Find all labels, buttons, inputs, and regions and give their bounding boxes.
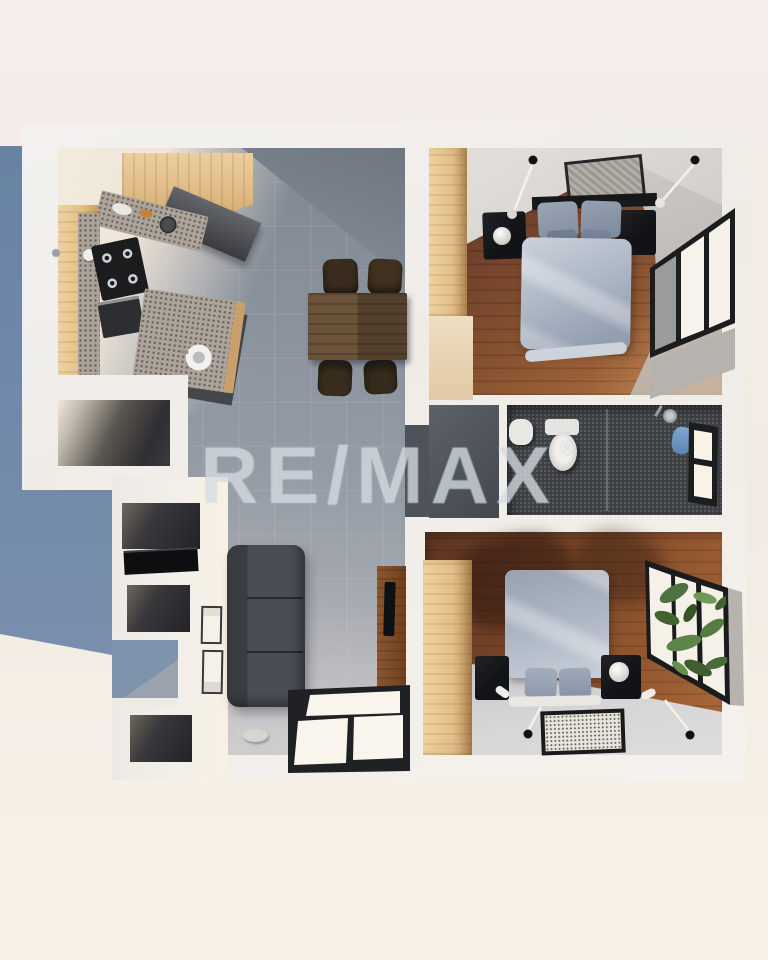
shower-head (663, 409, 677, 423)
bread (139, 208, 154, 219)
closet-column (112, 477, 228, 780)
sunlight-patch (579, 288, 722, 395)
faucet (180, 350, 188, 354)
plate (111, 201, 133, 217)
door-handle (52, 249, 60, 257)
registered-trademark-symbol: ® (560, 439, 575, 459)
dining-chair (317, 359, 352, 396)
sofa (227, 545, 305, 707)
pillow (558, 667, 591, 698)
closet-interior (122, 503, 200, 549)
bedroom-1 (429, 148, 722, 395)
sink (184, 343, 213, 372)
sphere-lamp (609, 662, 629, 682)
blue-towel (670, 426, 694, 456)
duvet (505, 570, 609, 678)
floor-plate (243, 729, 268, 742)
pillow (524, 667, 558, 699)
dining-table (308, 293, 407, 360)
floor-plan-render: RE/MAX® (0, 0, 768, 960)
pan (158, 214, 179, 235)
tv (383, 582, 395, 636)
utility-room-interior (58, 400, 170, 466)
sphere-lamp (493, 227, 511, 245)
dining-chair (363, 359, 398, 395)
framed-sketch (201, 606, 223, 644)
sofa-seam (247, 597, 303, 599)
dining-chair (322, 258, 358, 296)
floor-mat (540, 709, 625, 756)
lit-wall-corner (429, 316, 473, 400)
closet-interior (130, 715, 192, 762)
bedroom-2 (425, 532, 722, 755)
shadow-corner (112, 640, 178, 706)
watermark: RE/MAX® (200, 436, 575, 517)
headboard (509, 695, 601, 707)
laundry-counter (123, 547, 198, 575)
dining-chair (367, 258, 403, 296)
wall-sliver (112, 698, 178, 706)
kitchen-left-counter (78, 213, 100, 375)
framed-sketch (202, 650, 224, 694)
wardrobe (423, 560, 472, 755)
shadow-corner-floor (112, 640, 178, 706)
sofa-seam (247, 651, 303, 653)
wardrobe (429, 148, 467, 316)
closet-interior (127, 585, 190, 632)
watermark-brand: RE/MAX (200, 431, 557, 521)
shower-arm (654, 405, 663, 417)
